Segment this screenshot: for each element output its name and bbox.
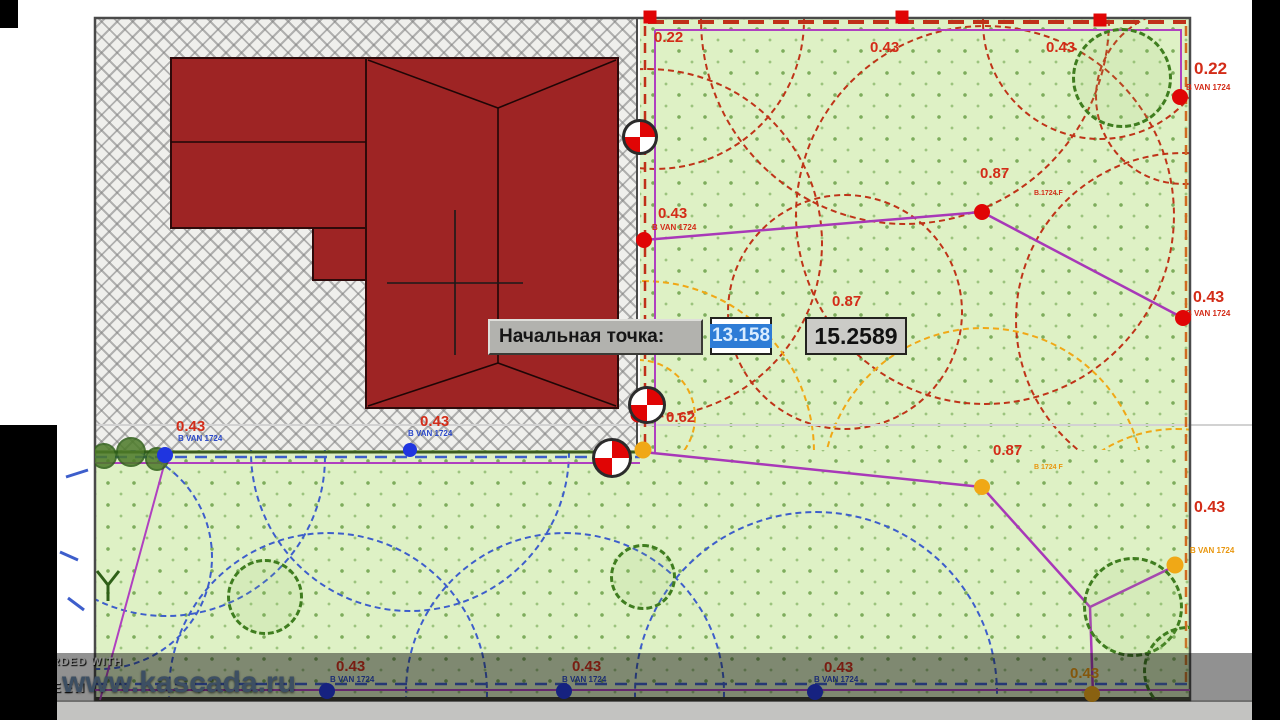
canvas-outside-area	[0, 700, 1280, 720]
dimension-label: 0.22	[1194, 60, 1227, 77]
dimension-label: B VAN 1724	[1186, 84, 1230, 92]
cad-drawing-canvas[interactable]: 0.220.430.430.22B VAN 17240.43B VAN 1724…	[0, 0, 1280, 720]
prompt-label: Начальная точка:	[499, 326, 664, 348]
coordinate-x-input[interactable]: 13.158	[710, 317, 772, 355]
site-watermark: www.kascada.ru	[62, 666, 296, 700]
dynamic-input-prompt: Начальная точка:	[488, 319, 703, 355]
dimension-label: B VAN 1724	[1186, 310, 1230, 318]
coordinate-x-value-selected: 13.158	[710, 324, 772, 348]
coordinate-y-value: 15.2589	[814, 323, 897, 350]
valve-symbol[interactable]	[592, 438, 632, 478]
dimension-label: B VAN 1724	[1190, 547, 1234, 555]
valve-symbol[interactable]	[628, 386, 666, 424]
letterbox-bar-left	[0, 425, 57, 720]
coordinate-y-input[interactable]: 15.2589	[805, 317, 907, 355]
blue-offcanvas-marks	[60, 470, 88, 610]
dimension-label: 0.43	[1193, 290, 1224, 306]
letterbox-corner	[0, 0, 18, 28]
dimension-label: 0.43	[1194, 500, 1225, 516]
valve-symbol[interactable]	[622, 119, 658, 155]
letterbox-bar-right	[1252, 0, 1280, 720]
paving-hatch-area	[95, 18, 637, 452]
